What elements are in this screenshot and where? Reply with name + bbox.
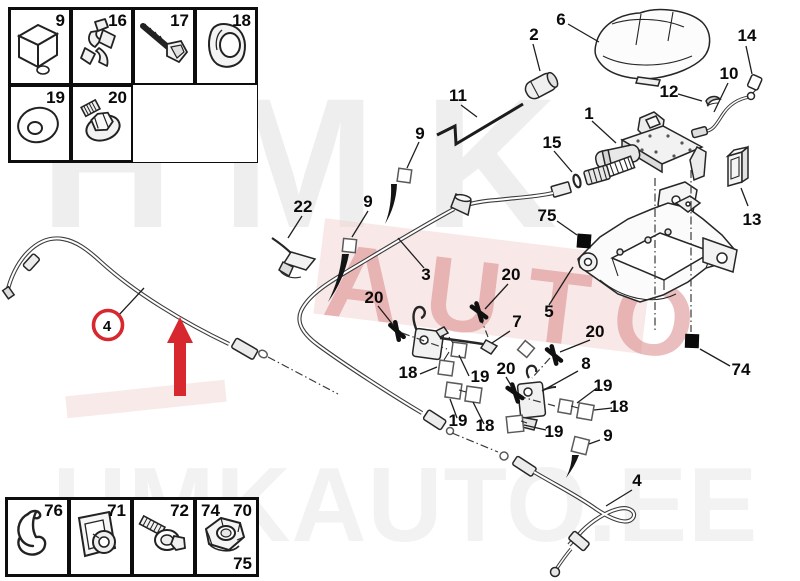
parts-grid-bottom: 76 71 bbox=[5, 497, 259, 577]
callout-9c: 9 bbox=[603, 426, 612, 445]
callout-20d: 20 bbox=[497, 359, 516, 378]
grid-cell-74-70-75: 74 70 75 bbox=[195, 498, 258, 576]
callout-19c: 19 bbox=[594, 376, 613, 395]
cable-part-4-right bbox=[452, 433, 634, 577]
callout-4-circled: 4 bbox=[103, 318, 112, 335]
grid-cell-16: 16 bbox=[71, 8, 133, 85]
callout-15: 15 bbox=[543, 133, 562, 152]
hose-part-10 bbox=[691, 88, 759, 138]
grid-cell-71: 71 bbox=[69, 498, 132, 576]
highlight-arrow bbox=[167, 317, 193, 396]
callout-19d: 19 bbox=[545, 422, 564, 441]
callout-9b: 9 bbox=[363, 192, 372, 211]
callout-74: 74 bbox=[732, 360, 751, 379]
callout-19b: 19 bbox=[449, 411, 468, 430]
callout-11: 11 bbox=[449, 86, 467, 105]
callout-22: 22 bbox=[294, 197, 313, 216]
equalizer-and-oring-15 bbox=[551, 165, 610, 197]
grid-cell-16-label: 16 bbox=[108, 11, 127, 31]
callout-18b: 18 bbox=[476, 416, 495, 435]
cover-part-6 bbox=[595, 10, 710, 86]
callout-19a: 19 bbox=[471, 367, 490, 386]
grid-cell-72-label: 72 bbox=[170, 501, 189, 521]
grid-cell-20-label: 20 bbox=[108, 88, 127, 108]
cylinder-part-2 bbox=[523, 70, 561, 101]
clip-part-14 bbox=[747, 74, 762, 90]
callout-8: 8 bbox=[581, 354, 590, 373]
rod-part-11 bbox=[437, 104, 523, 144]
grid-cell-9: 9 bbox=[9, 8, 71, 85]
grid-cell-20: 20 bbox=[71, 85, 133, 162]
grid-cell-19: 19 bbox=[9, 85, 71, 162]
grid-cell-17: 17 bbox=[133, 8, 195, 85]
grid-cell-18: 18 bbox=[195, 8, 257, 85]
callout-14: 14 bbox=[738, 26, 757, 45]
bracket-part-22 bbox=[272, 238, 315, 278]
grid-cell-72: 72 bbox=[132, 498, 195, 576]
callout-6: 6 bbox=[556, 10, 565, 29]
grid-cell-71-label: 71 bbox=[107, 501, 126, 521]
block-part-13 bbox=[728, 147, 748, 186]
callout-9a: 9 bbox=[415, 124, 424, 143]
grid-cell-18-label: 18 bbox=[232, 11, 251, 31]
callout-10: 10 bbox=[720, 64, 739, 83]
callout-7: 7 bbox=[512, 312, 521, 331]
callout-4-right: 4 bbox=[632, 471, 642, 490]
grid-cell-17-label: 17 bbox=[170, 11, 189, 31]
callout-2: 2 bbox=[529, 25, 538, 44]
grid-cell-75-label: 75 bbox=[233, 554, 252, 574]
callout-18a: 18 bbox=[399, 363, 418, 382]
grid-cell-74-label: 74 bbox=[201, 501, 220, 521]
grid-cell-9-label: 9 bbox=[56, 11, 65, 31]
grid-cell-76: 76 bbox=[6, 498, 69, 576]
callout-13: 13 bbox=[743, 210, 762, 229]
callout-20b: 20 bbox=[502, 265, 521, 284]
callout-1: 1 bbox=[584, 104, 593, 123]
grid-cell-19-label: 19 bbox=[46, 88, 65, 108]
callout-5: 5 bbox=[544, 302, 553, 321]
callout-20c: 20 bbox=[586, 322, 605, 341]
callout-20a: 20 bbox=[365, 288, 384, 307]
callout-18c: 18 bbox=[610, 397, 629, 416]
grid-cell-70-label: 70 bbox=[233, 501, 252, 521]
callout-12: 12 bbox=[660, 82, 679, 101]
grid-cell-76-label: 76 bbox=[44, 501, 63, 521]
parts-grid-top: 9 16 17 bbox=[8, 7, 258, 163]
support-bracket-part-5 bbox=[578, 196, 737, 302]
callout-3: 3 bbox=[421, 265, 430, 284]
parts-diagram-page: HMK AUTO HMKAUTO.EE bbox=[0, 0, 800, 581]
callout-75: 75 bbox=[538, 206, 557, 225]
